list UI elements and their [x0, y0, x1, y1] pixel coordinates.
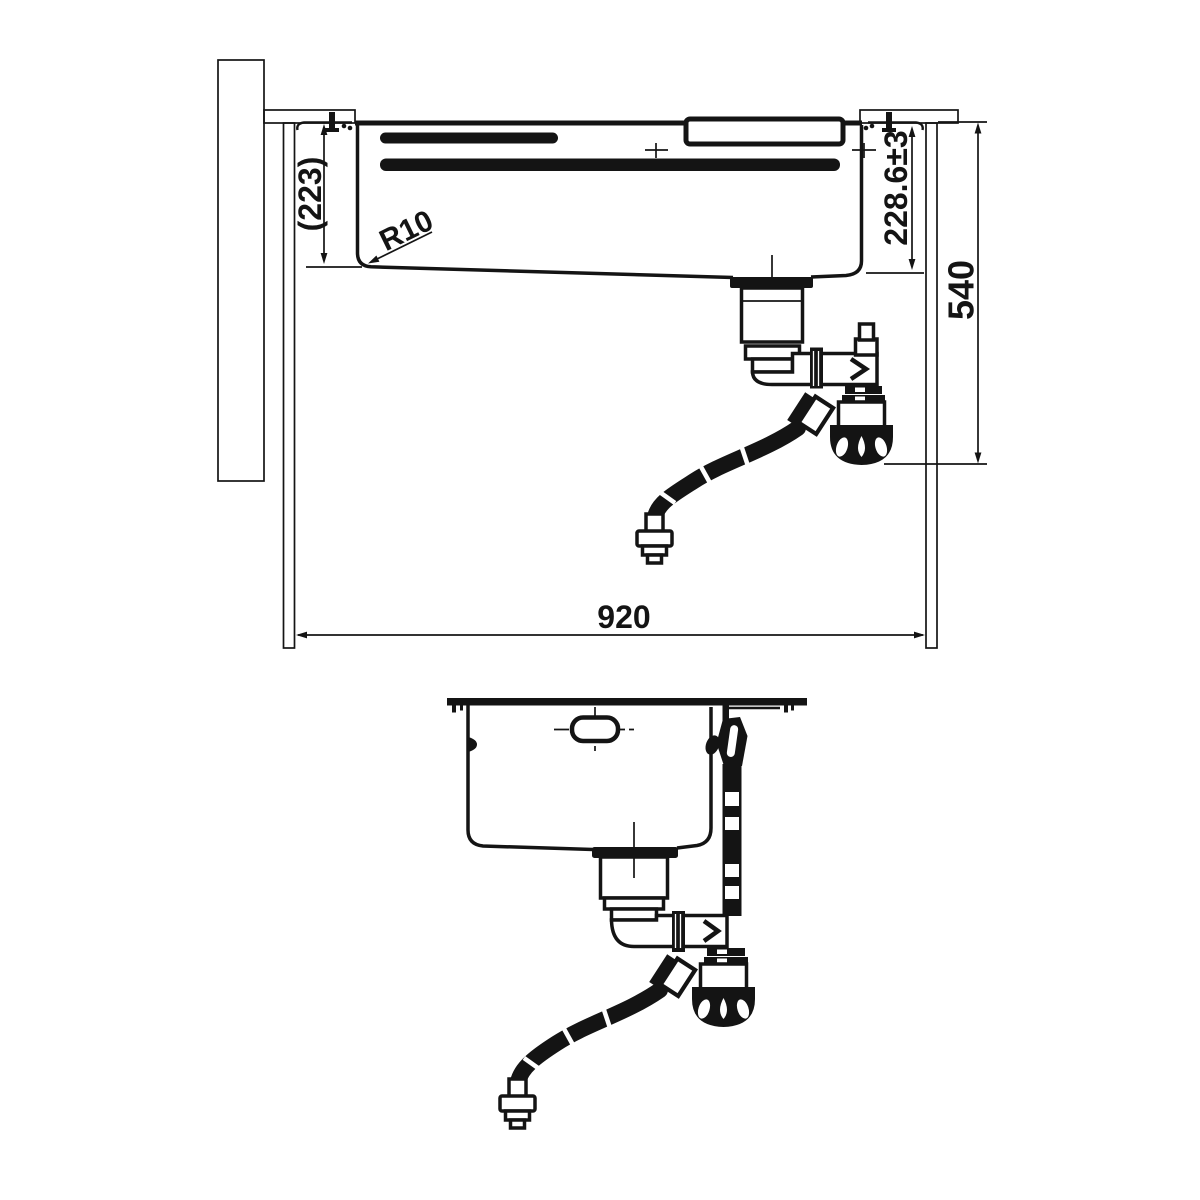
faucet-hole — [554, 707, 636, 753]
hose-end-fitting — [637, 514, 672, 563]
cabinet-panel-right — [926, 123, 937, 648]
side-view — [447, 698, 807, 1128]
sink-installation-drawing: (223) R10 228.6±3 540 — [0, 0, 1200, 1200]
side-rim — [447, 698, 807, 706]
dim-label-r10: R10 — [374, 204, 438, 258]
bowl-right — [811, 125, 862, 277]
drain-groove-1 — [380, 133, 558, 144]
side-flexible-drain-hose — [500, 953, 695, 1128]
centre-cross-right — [852, 143, 876, 158]
technical-drawing-svg: (223) R10 228.6±3 540 — [0, 0, 1200, 1200]
siphon-trap — [830, 386, 893, 465]
bowl-left-bottom — [358, 125, 734, 278]
side-hose-end-fitting — [500, 1079, 535, 1128]
dim-label-920: 920 — [597, 599, 650, 635]
dim-label-2286: 228.6±3 — [878, 130, 914, 245]
countertop-left — [264, 110, 355, 123]
dim-cabinet-width: 920 — [296, 599, 925, 638]
countertop-right — [860, 110, 958, 123]
dim-bowl-depth-outer: (223) — [292, 124, 362, 267]
side-basket-strainer — [592, 847, 678, 920]
drain-groove-2 — [380, 159, 840, 172]
dim-label-540: 540 — [941, 260, 982, 320]
centre-cross-left — [645, 143, 668, 158]
dim-bottom-radius: R10 — [368, 204, 438, 263]
wall-section — [218, 60, 264, 481]
side-rim-clips — [452, 706, 794, 713]
front-view: (223) R10 228.6±3 540 — [218, 60, 987, 648]
side-siphon-trap — [692, 948, 755, 1027]
mount-clip-right — [864, 112, 923, 132]
faucet-deck-recess — [686, 119, 843, 144]
side-bowl-right — [677, 707, 711, 848]
dim-label-223: (223) — [292, 157, 328, 232]
dim-bowl-depth-inner: 228.6±3 — [866, 126, 924, 273]
side-wall-clip — [468, 737, 477, 752]
flexible-drain-hose — [637, 391, 833, 563]
